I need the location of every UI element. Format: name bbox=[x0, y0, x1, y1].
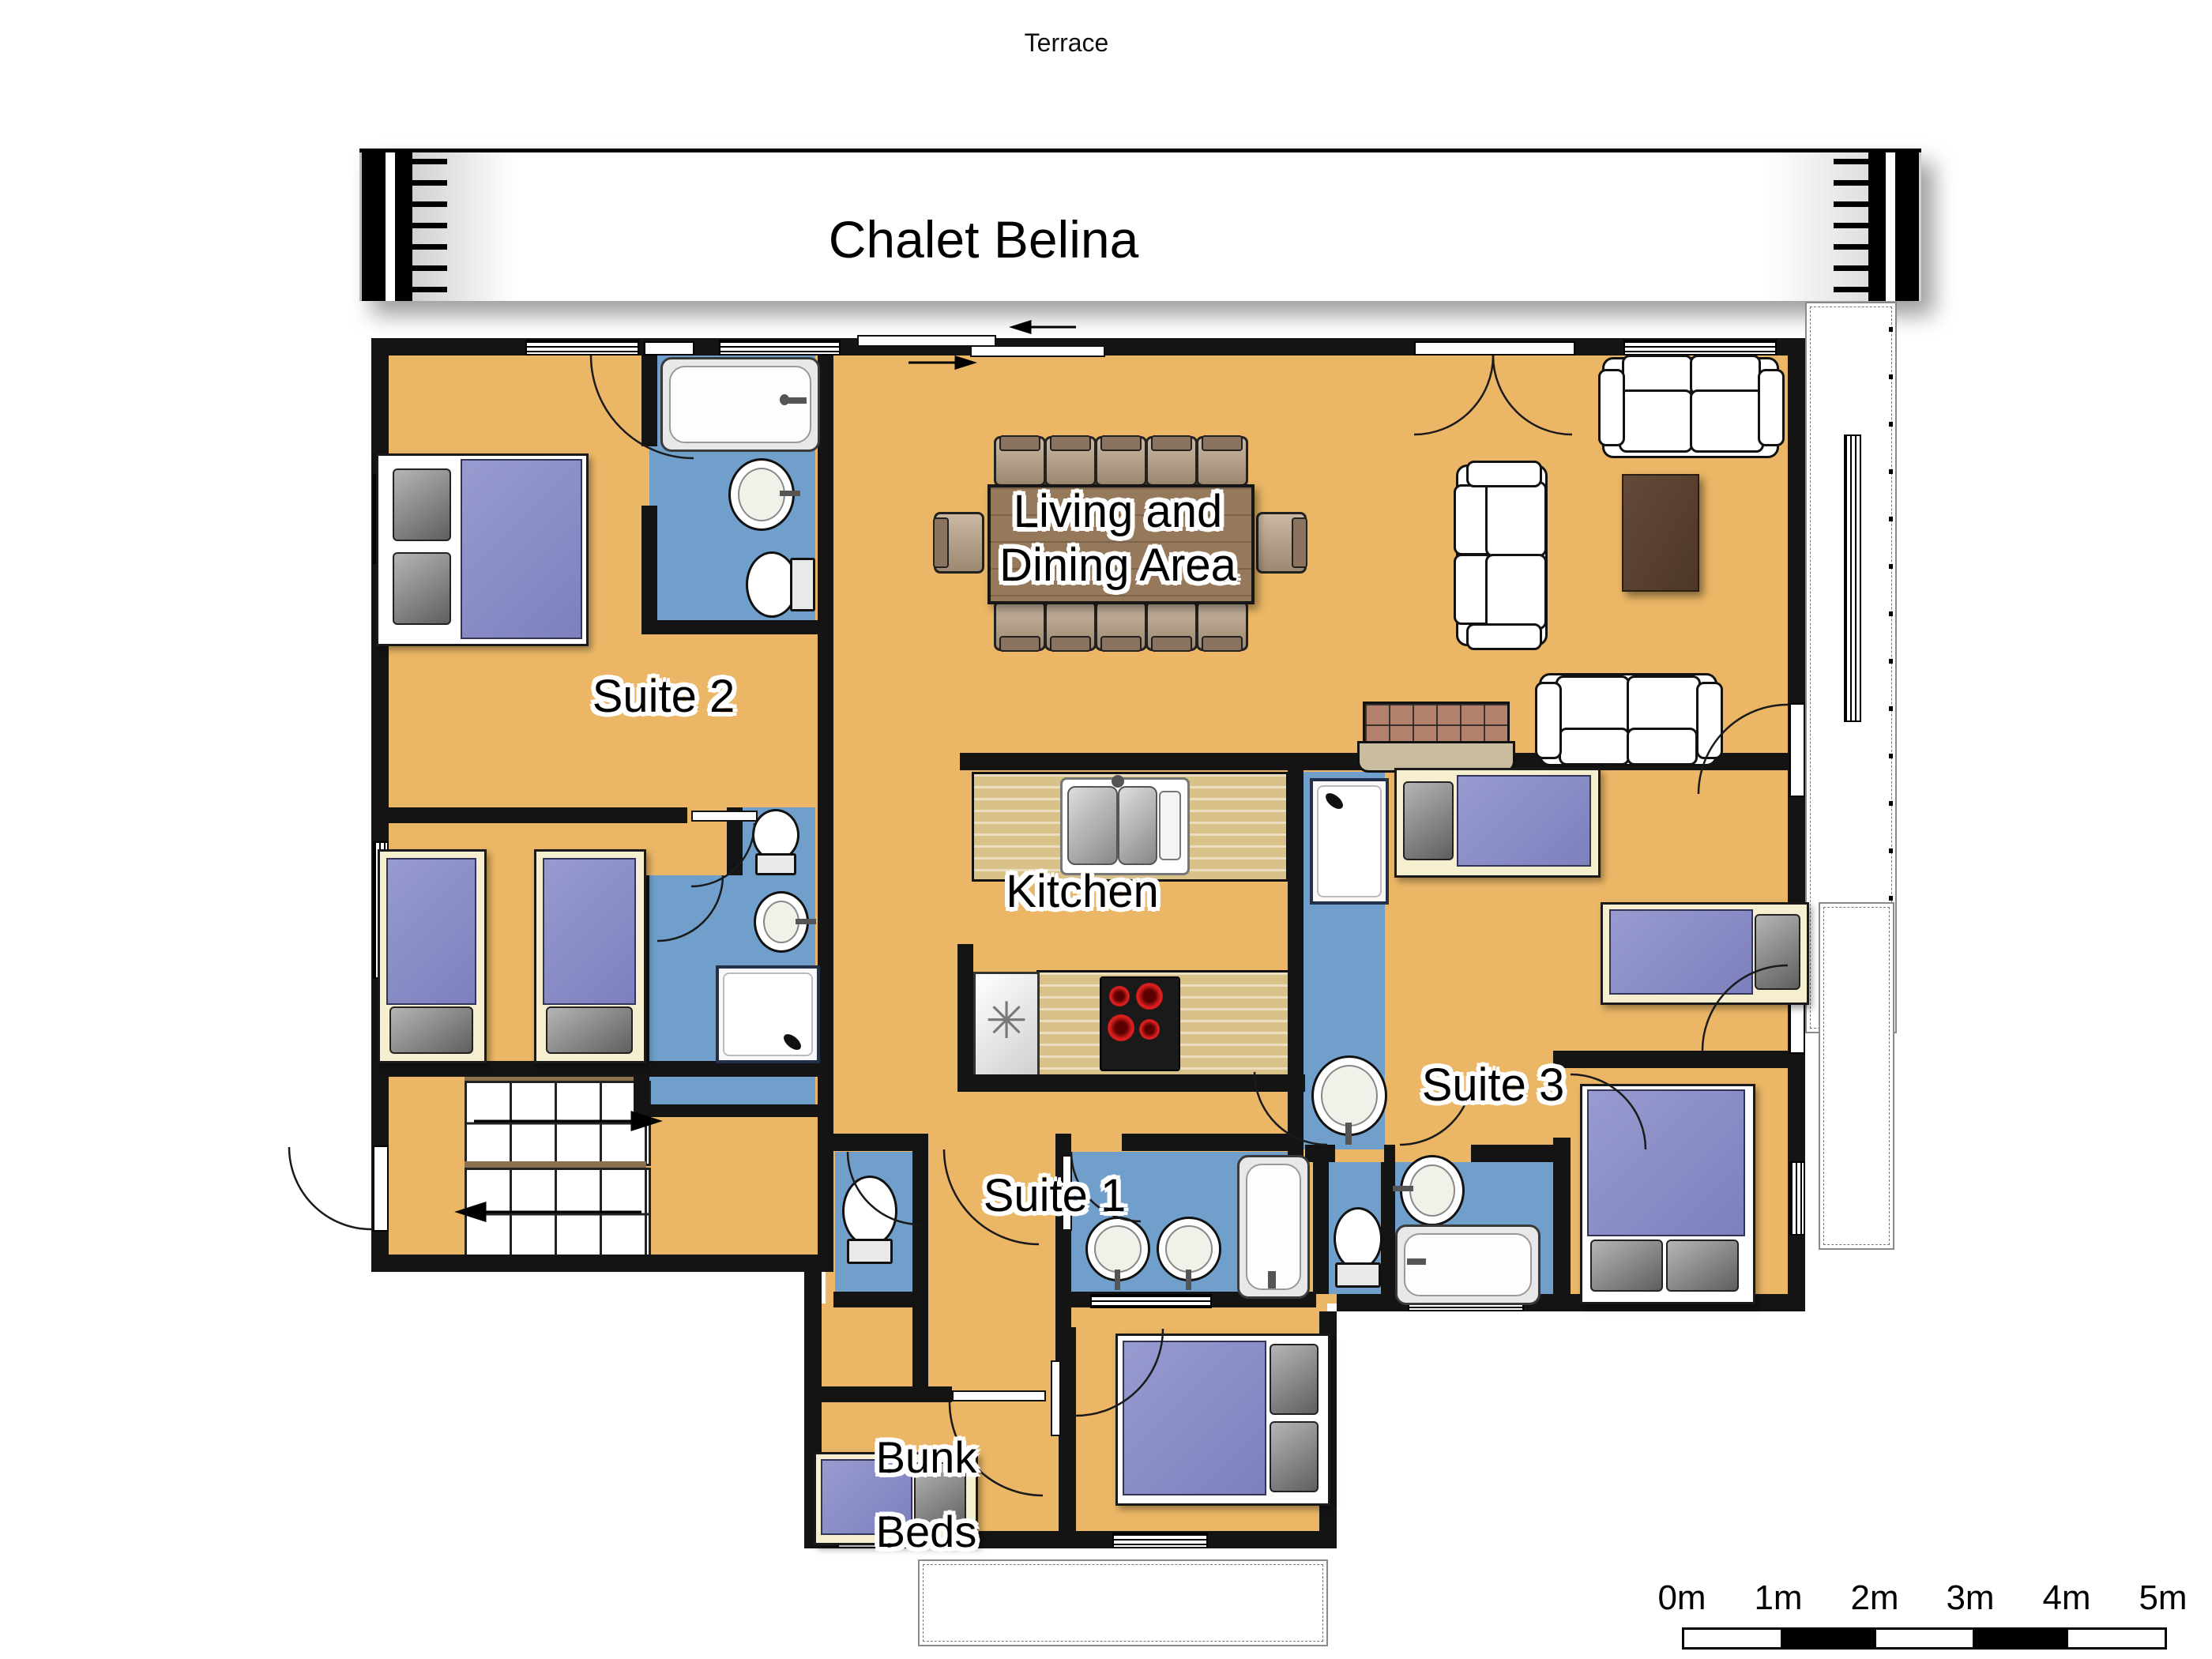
suite2-label: Suite 2 bbox=[506, 670, 822, 723]
kitchen-label: Kitchen bbox=[901, 865, 1264, 918]
scale-bar bbox=[1682, 1627, 2167, 1650]
living-dining-label: Living and Dining Area bbox=[905, 485, 1331, 592]
scale-segment bbox=[1684, 1630, 1781, 1647]
scale-label-3m: 3m bbox=[1923, 1578, 2018, 1618]
floor-plan: Terrace Chalet Belina bbox=[0, 0, 2212, 1659]
scale-segment bbox=[1781, 1630, 1877, 1647]
door-swing-overlay bbox=[0, 0, 2212, 1659]
suite1-label: Suite 1 bbox=[897, 1169, 1213, 1222]
scale-label-2m: 2m bbox=[1827, 1578, 1922, 1618]
suite3-label: Suite 3 bbox=[1335, 1059, 1651, 1112]
living-dining-label-line1: Living and bbox=[905, 485, 1331, 539]
scale-label-5m: 5m bbox=[2116, 1578, 2210, 1618]
scale-label-1m: 1m bbox=[1731, 1578, 1826, 1618]
bunk-beds-label-line1: Bunk bbox=[790, 1420, 1063, 1495]
scale-label-4m: 4m bbox=[2019, 1578, 2114, 1618]
scale-segment bbox=[1876, 1630, 1973, 1647]
bunk-beds-label: Bunk Beds bbox=[790, 1420, 1063, 1569]
scale-segment bbox=[2068, 1630, 2165, 1647]
scale-label-0m: 0m bbox=[1635, 1578, 1729, 1618]
bunk-beds-label-line2: Beds bbox=[790, 1495, 1063, 1569]
scale-segment bbox=[1973, 1630, 2069, 1647]
living-dining-label-line2: Dining Area bbox=[905, 539, 1331, 592]
